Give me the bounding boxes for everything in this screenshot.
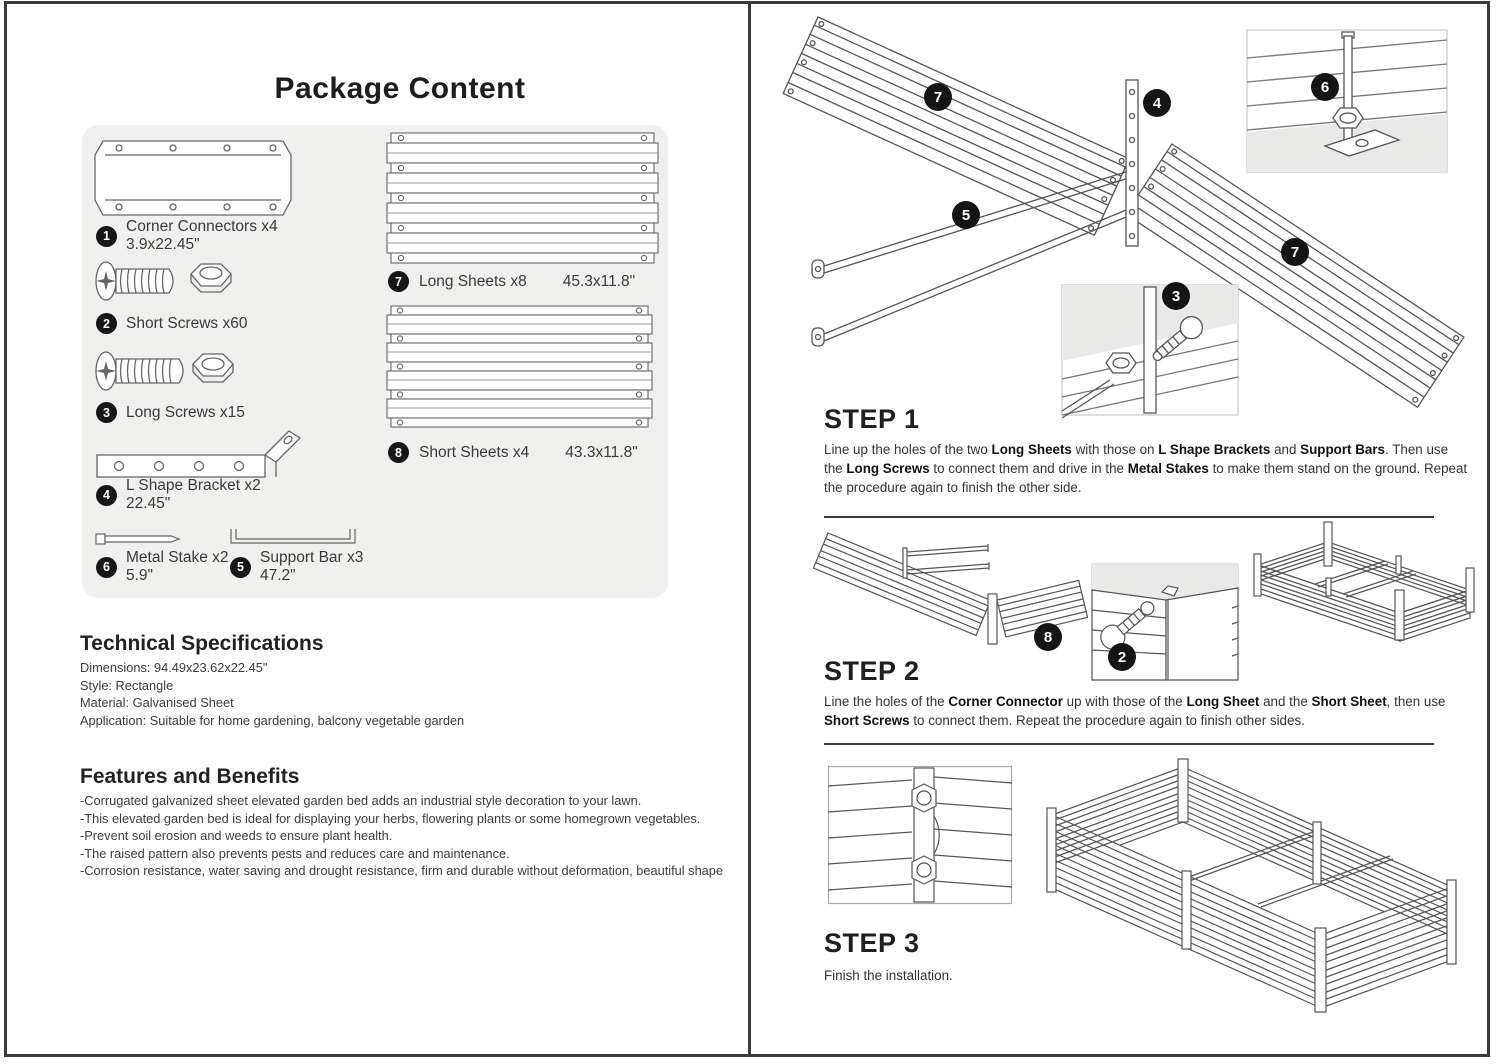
features-list: -Corrugated galvanized sheet elevated ga… [80,792,723,880]
step1-text: Line up the holes of the two Long Sheets… [824,440,1468,497]
item-number-badge: 4 [96,485,117,506]
spec-line: Material: Galvanised Sheet [80,694,464,712]
support-bar-drawing [228,526,358,548]
step1-diagram: 7 4 6 5 3 7 [760,6,1500,410]
item-label: Long Sheets x8 [419,273,527,291]
item-dimension: 3.9x22.45" [126,236,278,254]
short-sheets-drawing [385,306,655,434]
feature-line: -This elevated garden bed is ideal for d… [80,810,723,828]
manual-page: Package Content [0,0,1500,1064]
step3-connector-detail [828,766,1012,904]
specs-heading: Technical Specifications [80,632,324,656]
item-label: Long Screws x15 [126,404,245,422]
spec-line: Dimensions: 94.49x23.62x22.45" [80,659,464,677]
package-item-short-sheets: 8 Short Sheets x4 43.3x11.8" [388,442,638,463]
svg-text:7: 7 [934,89,942,106]
item-number-badge: 6 [96,557,117,578]
package-item-short-screws: 2 Short Screws x60 [96,313,247,334]
item-dimension: 45.3x11.8" [563,273,635,291]
item-label: Corner Connectors x4 [126,218,278,236]
feature-line: -Corrugated galvanized sheet elevated ga… [80,792,723,810]
step2-badge-2: 2 [1108,643,1136,671]
long-screw-drawing [95,348,237,394]
item-dimension: 43.3x11.8" [565,444,637,462]
page-title: Package Content [180,72,620,106]
l-shape-bracket-drawing [95,425,300,480]
item-label: L Shape Bracket x2 [126,477,261,495]
svg-text:4: 4 [1153,95,1162,112]
step2-heading: STEP 2 [824,656,920,687]
item-label: Short Screws x60 [126,315,247,333]
step2-badge-8: 8 [1034,623,1062,651]
item-label: Short Sheets x4 [419,444,529,462]
item-number-badge: 7 [388,271,409,292]
step3-heading: STEP 3 [824,928,920,959]
item-number-badge: 2 [96,313,117,334]
item-dimension: 5.9" [126,567,229,585]
corner-connector-drawing [95,138,291,218]
step1-badge-7-right: 7 [1281,238,1309,266]
step3-text: Finish the installation. [824,966,1224,985]
step1-heading: STEP 1 [824,404,920,435]
item-number-badge: 5 [230,557,251,578]
short-screw-drawing [95,258,235,304]
step2-diagram: 8 2 [760,522,1500,664]
long-sheets-drawing [385,133,661,269]
item-number-badge: 1 [96,226,117,247]
package-item-corner-connectors: 1 Corner Connectors x4 3.9x22.45" [96,218,278,254]
package-item-long-screws: 3 Long Screws x15 [96,402,245,423]
spec-line: Application: Suitable for home gardening… [80,712,464,730]
step1-badge-3: 3 [1162,282,1190,310]
package-item-support-bar: 5 Support Bar x3 47.2" [230,549,363,585]
step3-assembled-bed [1018,742,1498,1054]
item-dimension: 22.45" [126,495,261,513]
item-number-badge: 3 [96,402,117,423]
svg-text:5: 5 [962,207,970,224]
step1-badge-7-left: 7 [924,83,952,111]
svg-text:3: 3 [1172,288,1180,305]
section-divider [824,516,1434,518]
feature-line: -Prevent soil erosion and weeds to ensur… [80,827,723,845]
item-dimension: 47.2" [260,567,363,585]
step1-badge-6: 6 [1311,73,1339,101]
features-heading: Features and Benefits [80,765,299,789]
item-number-badge: 8 [388,442,409,463]
feature-line: -Corrosion resistance, water saving and … [80,862,723,880]
feature-line: -The raised pattern also prevents pests … [80,845,723,863]
svg-text:6: 6 [1321,79,1329,96]
column-divider [748,1,751,1054]
step1-badge-4: 4 [1143,89,1171,117]
step1-badge-5: 5 [952,201,980,229]
item-label: Support Bar x3 [260,549,363,567]
package-item-metal-stake: 6 Metal Stake x2 5.9" [96,549,229,585]
svg-text:8: 8 [1044,629,1052,646]
step2-text: Line the holes of the Corner Connector u… [824,692,1474,730]
specs-list: Dimensions: 94.49x23.62x22.45" Style: Re… [80,659,464,729]
item-label: Metal Stake x2 [126,549,229,567]
metal-stake-drawing [95,530,180,548]
package-item-long-sheets: 7 Long Sheets x8 45.3x11.8" [388,271,635,292]
svg-text:2: 2 [1118,649,1126,666]
svg-text:7: 7 [1291,244,1299,261]
package-item-l-shape-bracket: 4 L Shape Bracket x2 22.45" [96,477,261,513]
spec-line: Style: Rectangle [80,677,464,695]
